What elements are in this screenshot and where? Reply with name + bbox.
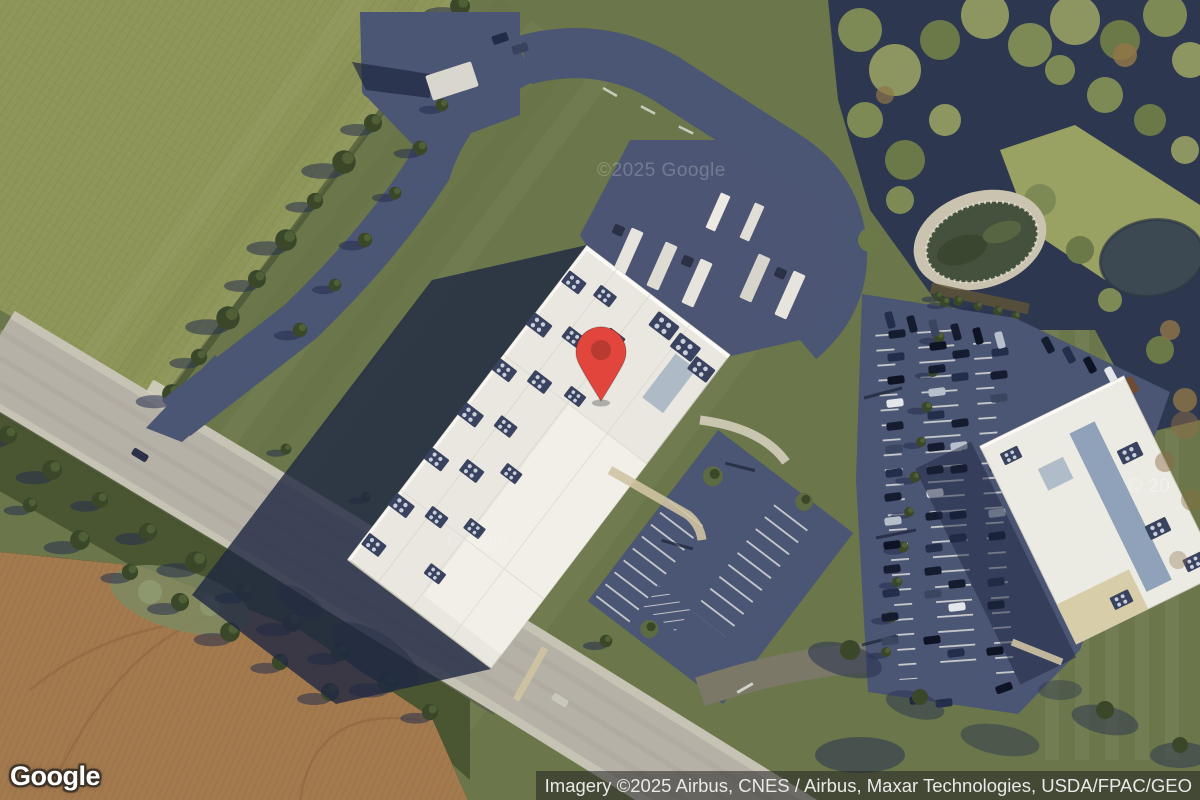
imagery-attribution: Imagery ©2025 Airbus, CNES / Airbus, Max…	[536, 771, 1200, 800]
marker-body	[576, 327, 626, 401]
map-canvas[interactable]: ©2025 Google Google © 20 Google Imagery …	[0, 0, 1200, 800]
marker-dot	[591, 340, 611, 360]
google-logo[interactable]: Google	[10, 761, 100, 792]
map-marker[interactable]	[573, 322, 629, 402]
